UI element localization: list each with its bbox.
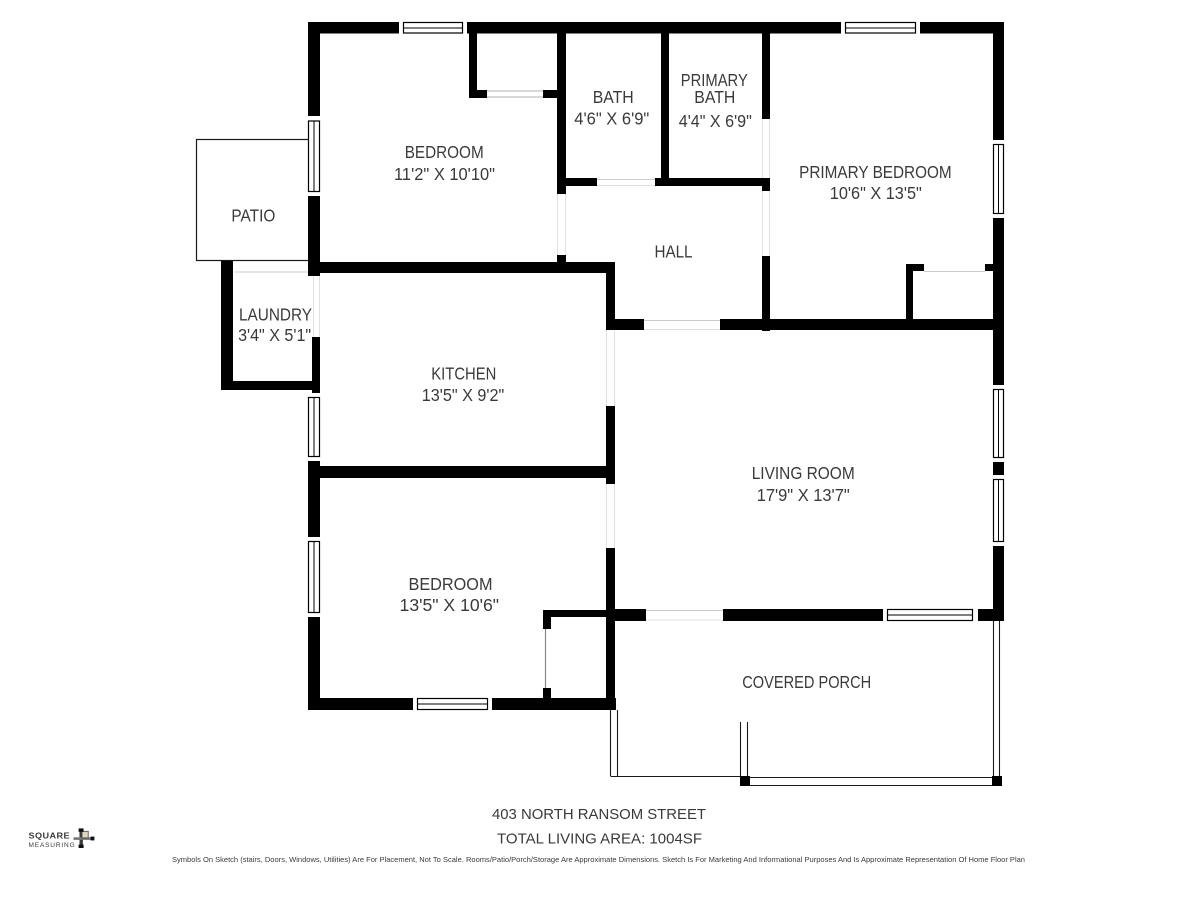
svg-text:17'9" X 13'7": 17'9" X 13'7" [757,485,850,505]
svg-text:SQUARE: SQUARE [29,831,71,841]
svg-text:13'5" X 10'6": 13'5" X 10'6" [400,595,500,615]
svg-text:LIVING ROOM: LIVING ROOM [752,463,855,483]
svg-text:PRIMARY BEDROOM: PRIMARY BEDROOM [799,162,952,182]
svg-text:403 NORTH RANSOM STREET: 403 NORTH RANSOM STREET [492,806,706,823]
svg-text:MEASURING: MEASURING [29,842,76,849]
svg-text:HALL: HALL [655,242,693,262]
svg-text:4'6" X 6'9": 4'6" X 6'9" [574,109,649,129]
svg-text:11'2" X 10'10": 11'2" X 10'10" [394,164,495,184]
svg-text:BEDROOM: BEDROOM [405,142,484,162]
svg-text:PATIO: PATIO [231,206,275,226]
svg-text:4'4" X 6'9": 4'4" X 6'9" [679,111,752,131]
svg-text:KITCHEN: KITCHEN [431,364,496,384]
svg-text:TOTAL LIVING AREA: 1004SF: TOTAL LIVING AREA: 1004SF [497,831,702,848]
svg-text:BEDROOM: BEDROOM [409,574,493,594]
svg-text:13'5" X 9'2": 13'5" X 9'2" [422,385,505,405]
svg-text:10'6" X 13'5": 10'6" X 13'5" [830,183,922,203]
svg-text:BATH: BATH [694,87,735,107]
svg-text:COVERED PORCH: COVERED PORCH [742,672,871,692]
svg-text:BATH: BATH [593,87,634,107]
svg-text:3'4" X 5'1": 3'4" X 5'1" [238,325,311,345]
svg-text:LAUNDRY: LAUNDRY [239,305,312,325]
svg-text:Symbols On Sketch (stairs, Doo: Symbols On Sketch (stairs, Doors, Window… [172,855,1025,864]
